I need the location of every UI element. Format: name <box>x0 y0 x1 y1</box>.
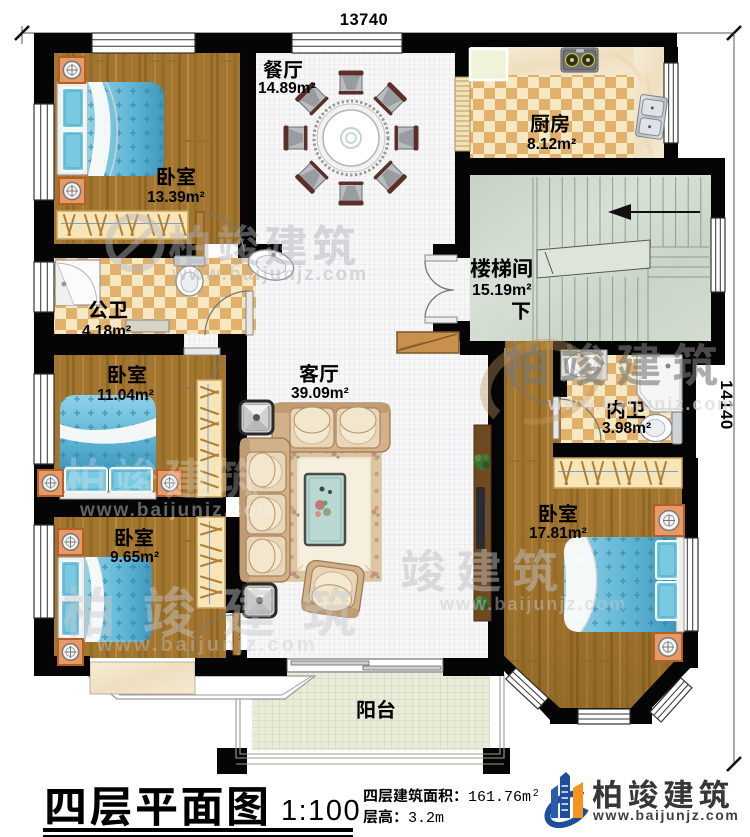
svg-text:161.76m: 161.76m <box>468 789 531 806</box>
svg-text:4.18m²: 4.18m² <box>82 323 131 340</box>
svg-text:9.65m²: 9.65m² <box>110 549 159 566</box>
svg-text:www.baijunjz.com: www.baijunjz.com <box>592 807 739 823</box>
svg-text:3.2m: 3.2m <box>408 810 444 827</box>
svg-text:13.39m²: 13.39m² <box>147 189 205 206</box>
svg-text:13740: 13740 <box>340 11 388 29</box>
svg-text:8.12m²: 8.12m² <box>527 136 576 153</box>
svg-text:11.04m²: 11.04m² <box>97 387 154 404</box>
svg-text:15.19m²: 15.19m² <box>472 282 532 299</box>
svg-text:2: 2 <box>533 788 539 799</box>
svg-text:17.81m²: 17.81m² <box>529 525 587 542</box>
svg-text:www.baijunjz.com: www.baijunjz.com <box>171 264 368 285</box>
svg-text:1:100: 1:100 <box>281 795 361 827</box>
svg-text:www.baijunjz.com: www.baijunjz.com <box>79 500 276 521</box>
svg-text:14.89m²: 14.89m² <box>258 80 316 97</box>
svg-text:www.baijunjz.com: www.baijunjz.com <box>439 594 627 614</box>
svg-text:3.98m²: 3.98m² <box>602 420 651 437</box>
svg-text:www.baijunjz.com: www.baijunjz.com <box>547 394 735 414</box>
svg-text:39.09m²: 39.09m² <box>291 385 349 402</box>
svg-text:www.baijunjz.com: www.baijunjz.com <box>96 634 318 656</box>
